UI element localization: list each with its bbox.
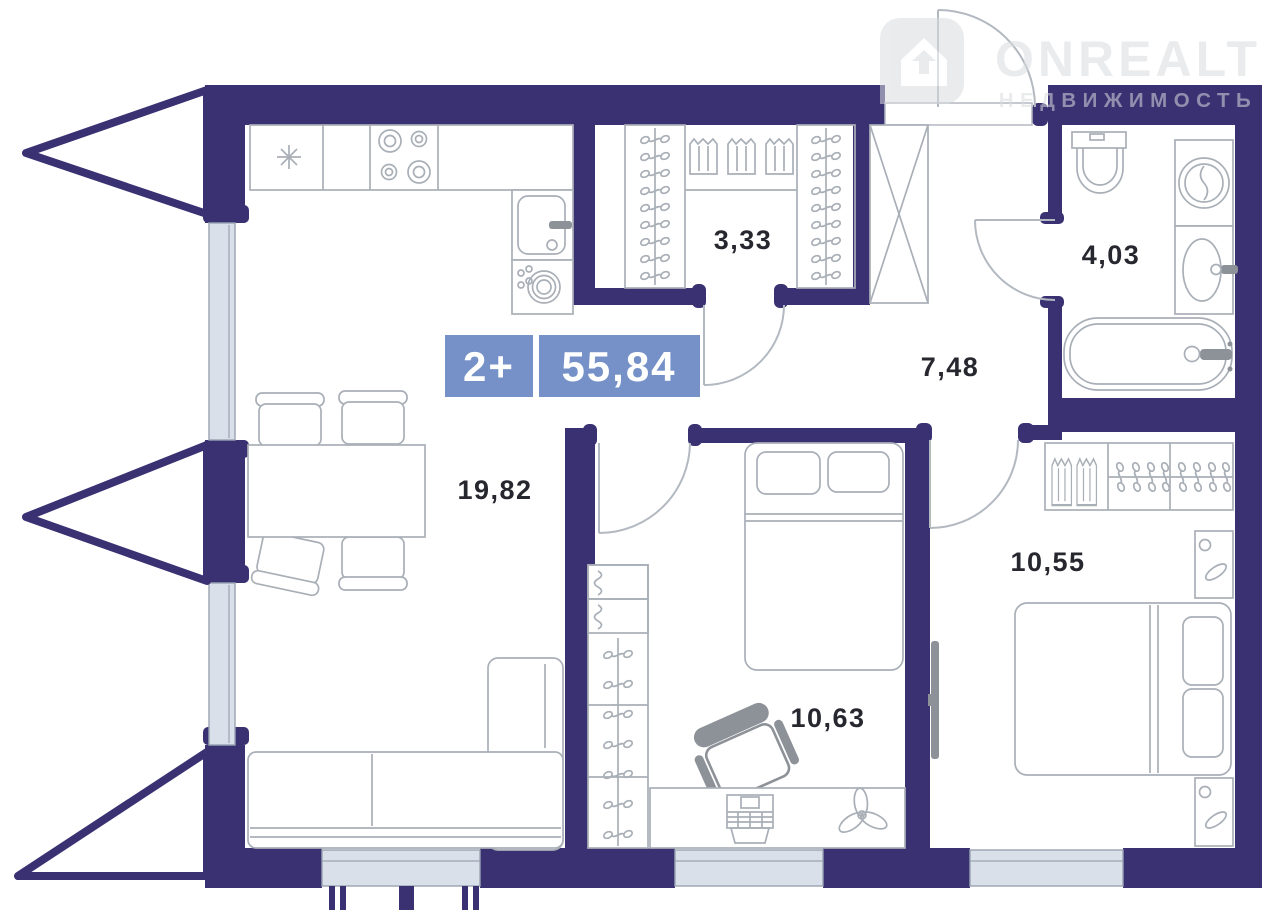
chair-icon — [339, 391, 407, 444]
watermark: ONREALT НЕДВИЖИМОСТЬ — [880, 18, 1261, 112]
area-label-bedroom-right: 10,55 — [1010, 547, 1085, 577]
apartment-badge: 2+ 55,84 — [445, 335, 700, 397]
area-label-bathroom: 4,03 — [1082, 240, 1141, 270]
nightstand-icon — [1195, 778, 1233, 846]
window — [675, 850, 823, 886]
nightstand-icon — [1195, 531, 1233, 598]
kitchen-sink-icon — [512, 190, 573, 260]
chair-icon — [339, 537, 407, 590]
balcony-railing — [329, 886, 479, 910]
window — [970, 850, 1123, 886]
wardrobe-icon — [1045, 443, 1233, 510]
window — [209, 583, 235, 745]
logo-pin-icon — [880, 18, 964, 104]
window — [209, 223, 235, 440]
bathtub-icon — [1064, 318, 1233, 390]
wardrobe-icon — [588, 565, 648, 848]
bedroom-right-door-arc — [930, 440, 1018, 528]
desk-icon — [650, 788, 905, 848]
bed-icon — [745, 443, 903, 670]
area-label-bedroom-middle: 10,63 — [790, 703, 865, 733]
area-label-closet: 3,33 — [714, 225, 773, 255]
chair-icon — [256, 393, 324, 446]
balcony-door — [322, 850, 480, 886]
direction-arrow — [26, 90, 207, 214]
watermark-brand: ONREALT — [995, 31, 1261, 87]
direction-arrow — [26, 445, 207, 581]
total-area: 55,84 — [561, 343, 676, 390]
washing-machine-icon — [1175, 140, 1233, 226]
window-direction-arrows — [18, 90, 207, 876]
kitchen — [250, 125, 573, 314]
direction-arrow — [18, 752, 207, 876]
bathroom-door-arc — [975, 220, 1055, 300]
area-label-living: 19,82 — [457, 475, 532, 505]
sofa-icon — [248, 658, 563, 850]
bedroom-right — [928, 443, 1233, 846]
walk-in-closet — [625, 125, 855, 288]
rooms-count: 2+ — [463, 343, 515, 390]
watermark-tagline: НЕДВИЖИМОСТЬ — [999, 89, 1257, 112]
closet-door-arc — [704, 305, 784, 385]
bed-icon — [1015, 603, 1231, 775]
dining-table-icon — [248, 445, 425, 537]
floor-plan-page: 2+ 55,84 19,82 3,33 7,48 4,03 10,55 10,6… — [0, 0, 1280, 910]
shaft-icon — [870, 125, 928, 303]
closet-shelf-icons — [685, 139, 797, 190]
floor-plan: 2+ 55,84 19,82 3,33 7,48 4,03 10,55 10,6… — [0, 0, 1280, 910]
hanger-rail-icon — [625, 125, 685, 288]
toilet-icon — [1072, 132, 1126, 193]
bedroom-middle — [588, 443, 905, 848]
bathroom-sink-icon — [1175, 226, 1238, 314]
chair-icon — [251, 530, 329, 596]
dining-set — [248, 391, 425, 596]
area-label-hallway: 7,48 — [921, 352, 980, 382]
dishwasher-icon — [512, 260, 573, 314]
bedroom-middle-door-arc — [599, 443, 690, 533]
hanger-rail-icon — [797, 125, 855, 288]
